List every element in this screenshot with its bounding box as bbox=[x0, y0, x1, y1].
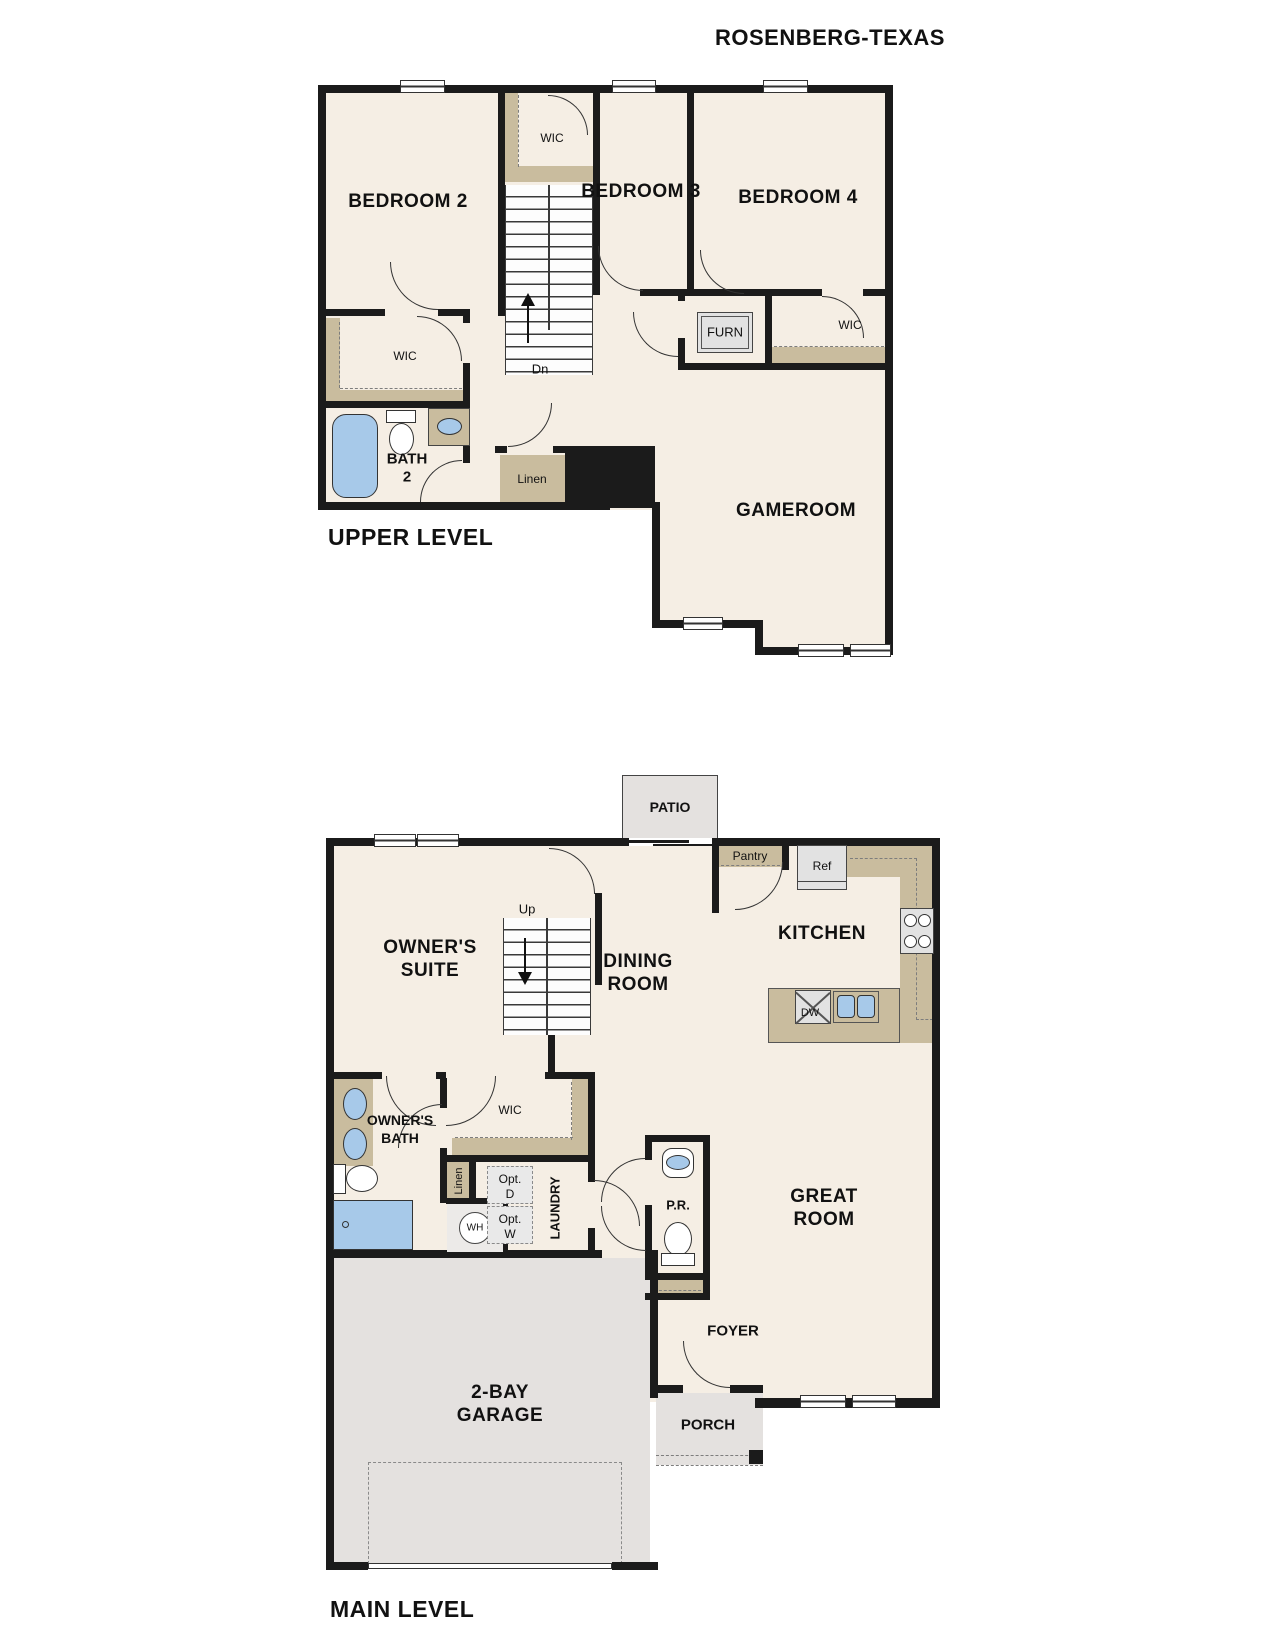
label-stairs-up: Up bbox=[519, 902, 536, 917]
room-label-great-line1: GREAT bbox=[790, 1186, 858, 1208]
wall bbox=[326, 1562, 368, 1570]
label-pantry: Pantry bbox=[733, 849, 768, 863]
wall bbox=[678, 289, 685, 301]
window bbox=[400, 80, 445, 93]
wall bbox=[318, 85, 326, 510]
wall bbox=[595, 893, 602, 985]
label-opt-d-line2: D bbox=[506, 1187, 515, 1201]
pr-toilet-tank bbox=[661, 1253, 695, 1266]
label-ref: Ref bbox=[813, 859, 832, 873]
owner-sink-1 bbox=[343, 1088, 367, 1120]
wic-bed2-dash2 bbox=[339, 322, 340, 388]
wall bbox=[885, 85, 893, 655]
porch-post bbox=[749, 1450, 763, 1464]
wall bbox=[553, 446, 567, 453]
label-patio: PATIO bbox=[650, 799, 691, 815]
wall bbox=[645, 1293, 710, 1300]
wall bbox=[495, 446, 507, 453]
upper-cabinet-dash-top bbox=[850, 858, 917, 859]
room-label-owners-suite-line1: OWNER'S bbox=[383, 937, 477, 959]
room-label-porch: PORCH bbox=[681, 1417, 735, 1434]
porch-dash bbox=[656, 1455, 763, 1456]
window bbox=[374, 834, 416, 847]
wall bbox=[318, 502, 610, 510]
wall bbox=[326, 1072, 382, 1079]
window bbox=[612, 80, 656, 93]
room-label-great-line2: ROOM bbox=[793, 1209, 854, 1231]
owner-toilet-bowl bbox=[346, 1165, 378, 1192]
label-opt-w-line2: W bbox=[504, 1227, 515, 1241]
pr-sink bbox=[666, 1155, 690, 1170]
floorplan-canvas: ROSENBERG-TEXAS bbox=[0, 0, 1275, 1650]
room-label-owners-bath-line2: BATH bbox=[381, 1130, 419, 1146]
label-wh: WH bbox=[467, 1223, 484, 1234]
pr-toilet-bowl bbox=[664, 1222, 692, 1256]
plan-title: ROSENBERG-TEXAS bbox=[715, 25, 945, 51]
wic-bed4-dash bbox=[774, 346, 884, 347]
label-opt-d-line1: Opt. bbox=[499, 1172, 522, 1186]
wall bbox=[765, 289, 772, 370]
wall bbox=[765, 363, 893, 370]
label-furn: FURN bbox=[707, 325, 743, 340]
window bbox=[683, 617, 723, 630]
toilet-tank bbox=[386, 410, 416, 423]
wall bbox=[645, 1135, 710, 1142]
wall bbox=[863, 289, 893, 296]
room-label-bath2-line1: BATH bbox=[387, 451, 428, 468]
coat-closet-dash bbox=[654, 1290, 701, 1291]
room-label-owner-wic: WIC bbox=[498, 1103, 521, 1117]
wall bbox=[318, 309, 385, 316]
label-linen-main: Linen bbox=[453, 1168, 465, 1195]
range-cooktop bbox=[900, 908, 934, 954]
wic-stair-dash bbox=[518, 95, 519, 167]
gameroom-floor-area-lower bbox=[758, 500, 893, 652]
window bbox=[850, 644, 891, 657]
owner-wic-dash-h bbox=[455, 1137, 573, 1138]
room-label-gameroom: GAMEROOM bbox=[736, 500, 856, 522]
stair-arrow-up bbox=[527, 305, 529, 343]
room-label-wic-bed4: WIC bbox=[838, 318, 861, 332]
garage-door bbox=[368, 1563, 612, 1569]
window bbox=[852, 1395, 896, 1408]
label-linen-upper: Linen bbox=[517, 472, 546, 486]
wall bbox=[645, 1273, 710, 1280]
label-opt-w-line1: Opt. bbox=[499, 1212, 522, 1226]
room-label-bedroom-4: BEDROOM 4 bbox=[738, 187, 858, 209]
room-label-garage-line2: GARAGE bbox=[457, 1405, 543, 1427]
room-label-dining-line1: DINING bbox=[603, 951, 673, 973]
room-label-kitchen: KITCHEN bbox=[778, 923, 866, 945]
owner-bathtub bbox=[333, 1200, 413, 1250]
wall bbox=[755, 1398, 940, 1408]
kitchen-sink bbox=[833, 991, 879, 1023]
wall bbox=[440, 1148, 447, 1203]
owner-toilet-tank bbox=[333, 1164, 346, 1194]
room-label-foyer: FOYER bbox=[707, 1323, 759, 1340]
caption-main-level: MAIN LEVEL bbox=[330, 1596, 474, 1623]
wall bbox=[318, 401, 470, 408]
wall bbox=[730, 1385, 763, 1393]
foyer-coat-closet bbox=[652, 1280, 703, 1293]
window bbox=[763, 80, 808, 93]
wall bbox=[703, 1135, 710, 1295]
wall bbox=[612, 1562, 658, 1570]
wall bbox=[588, 1072, 595, 1162]
wall bbox=[652, 502, 660, 628]
wic-bed4-shelf bbox=[772, 347, 886, 364]
stair-arrow-down bbox=[524, 938, 526, 974]
room-label-wic-bed2: WIC bbox=[393, 349, 416, 363]
window bbox=[417, 834, 459, 847]
room-label-owners-bath-line1: OWNER'S bbox=[367, 1112, 433, 1128]
wall bbox=[712, 838, 719, 913]
wall bbox=[498, 85, 505, 316]
room-label-bedroom-2: BEDROOM 2 bbox=[348, 191, 468, 213]
garage-apron-dash bbox=[368, 1462, 622, 1564]
room-label-owners-suite-line2: SUITE bbox=[401, 960, 459, 982]
wall bbox=[782, 838, 789, 870]
room-label-bath2-line2: 2 bbox=[403, 469, 411, 486]
stair-rail bbox=[548, 185, 550, 330]
bath2-sink bbox=[437, 418, 462, 435]
owner-wic-shelf-bottom bbox=[452, 1138, 589, 1155]
bathtub bbox=[332, 414, 378, 498]
window bbox=[798, 644, 844, 657]
stair-arrowhead-down bbox=[518, 972, 532, 985]
porch-dash2 bbox=[656, 1465, 763, 1466]
wall-notch bbox=[565, 446, 655, 508]
wic-bed2-dash bbox=[340, 388, 462, 389]
owner-sink-2 bbox=[343, 1128, 367, 1160]
room-label-wic-stair: WIC bbox=[540, 131, 563, 145]
wic-stair-shelf-bottom bbox=[505, 166, 593, 182]
room-label-garage-line1: 2-BAY bbox=[471, 1382, 529, 1404]
wall bbox=[645, 1205, 652, 1280]
wall bbox=[463, 309, 470, 323]
patio-slider-door2 bbox=[653, 844, 713, 846]
wall bbox=[588, 1162, 595, 1182]
label-stairs-dn: Dn bbox=[532, 362, 549, 377]
stair-rail-main bbox=[546, 918, 548, 1035]
room-label-bedroom-3: BEDROOM 3 bbox=[581, 181, 701, 203]
caption-upper-level: UPPER LEVEL bbox=[328, 524, 493, 551]
wall bbox=[678, 363, 772, 370]
upper-cabinet-dash-bot bbox=[916, 1019, 933, 1020]
wall bbox=[650, 1385, 683, 1393]
patio-slider-door bbox=[629, 840, 689, 843]
wic-bed2-shelf bbox=[326, 318, 340, 401]
room-label-pr: P.R. bbox=[666, 1198, 690, 1213]
stair-arrowhead-up bbox=[521, 293, 535, 306]
label-dw: DW bbox=[801, 1007, 819, 1019]
owner-wic-dash-v bbox=[571, 1082, 572, 1140]
window bbox=[800, 1395, 846, 1408]
room-label-dining-line2: ROOM bbox=[607, 974, 668, 996]
room-label-laundry: LAUNDRY bbox=[548, 1176, 563, 1239]
